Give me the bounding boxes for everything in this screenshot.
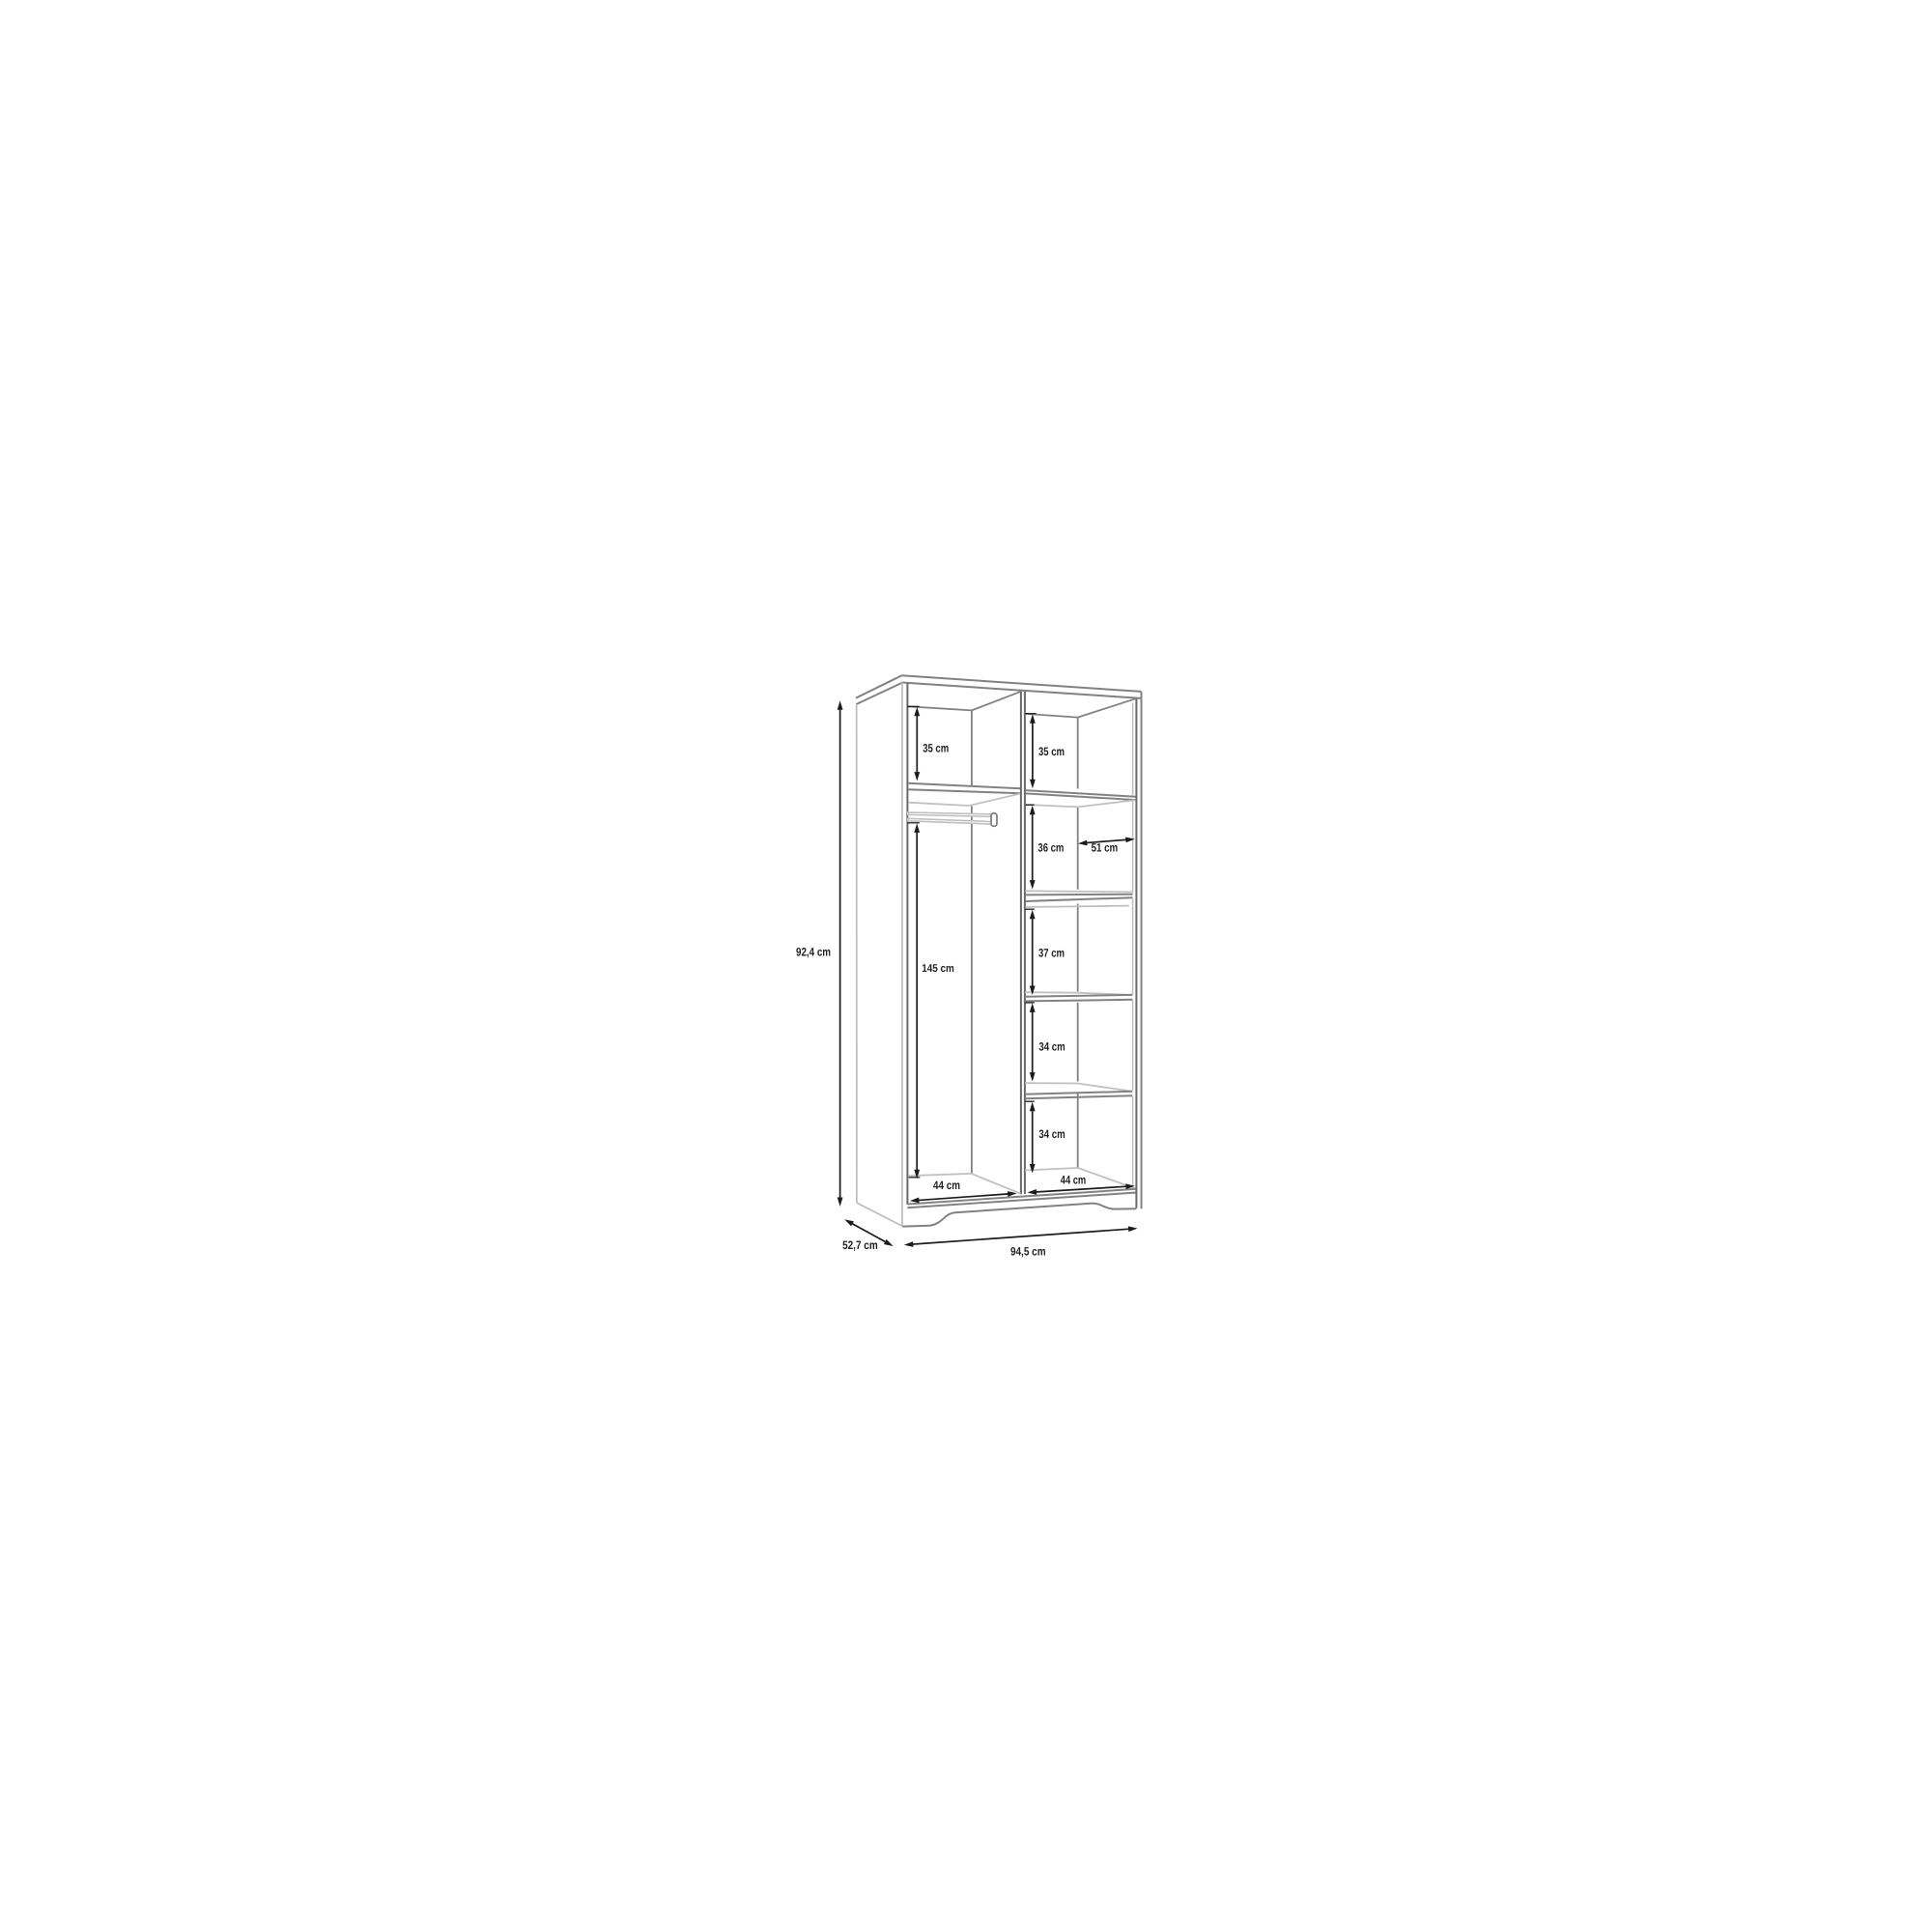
svg-text:51 cm: 51 cm	[1092, 841, 1119, 855]
svg-text:35 cm: 35 cm	[923, 742, 949, 755]
svg-text:52,7 cm: 52,7 cm	[842, 1238, 878, 1252]
svg-text:34 cm: 34 cm	[1038, 1127, 1065, 1141]
svg-text:44 cm: 44 cm	[1061, 1174, 1087, 1187]
svg-text:36 cm: 36 cm	[1037, 841, 1064, 855]
svg-text:34 cm: 34 cm	[1038, 1040, 1065, 1054]
svg-text:145 cm: 145 cm	[922, 963, 954, 975]
svg-text:37 cm: 37 cm	[1038, 946, 1065, 959]
svg-text:92,4 cm: 92,4 cm	[796, 945, 831, 958]
svg-text:94,5 cm: 94,5 cm	[1010, 1244, 1046, 1258]
svg-text:35 cm: 35 cm	[1038, 745, 1065, 758]
svg-text:44 cm: 44 cm	[933, 1179, 960, 1192]
